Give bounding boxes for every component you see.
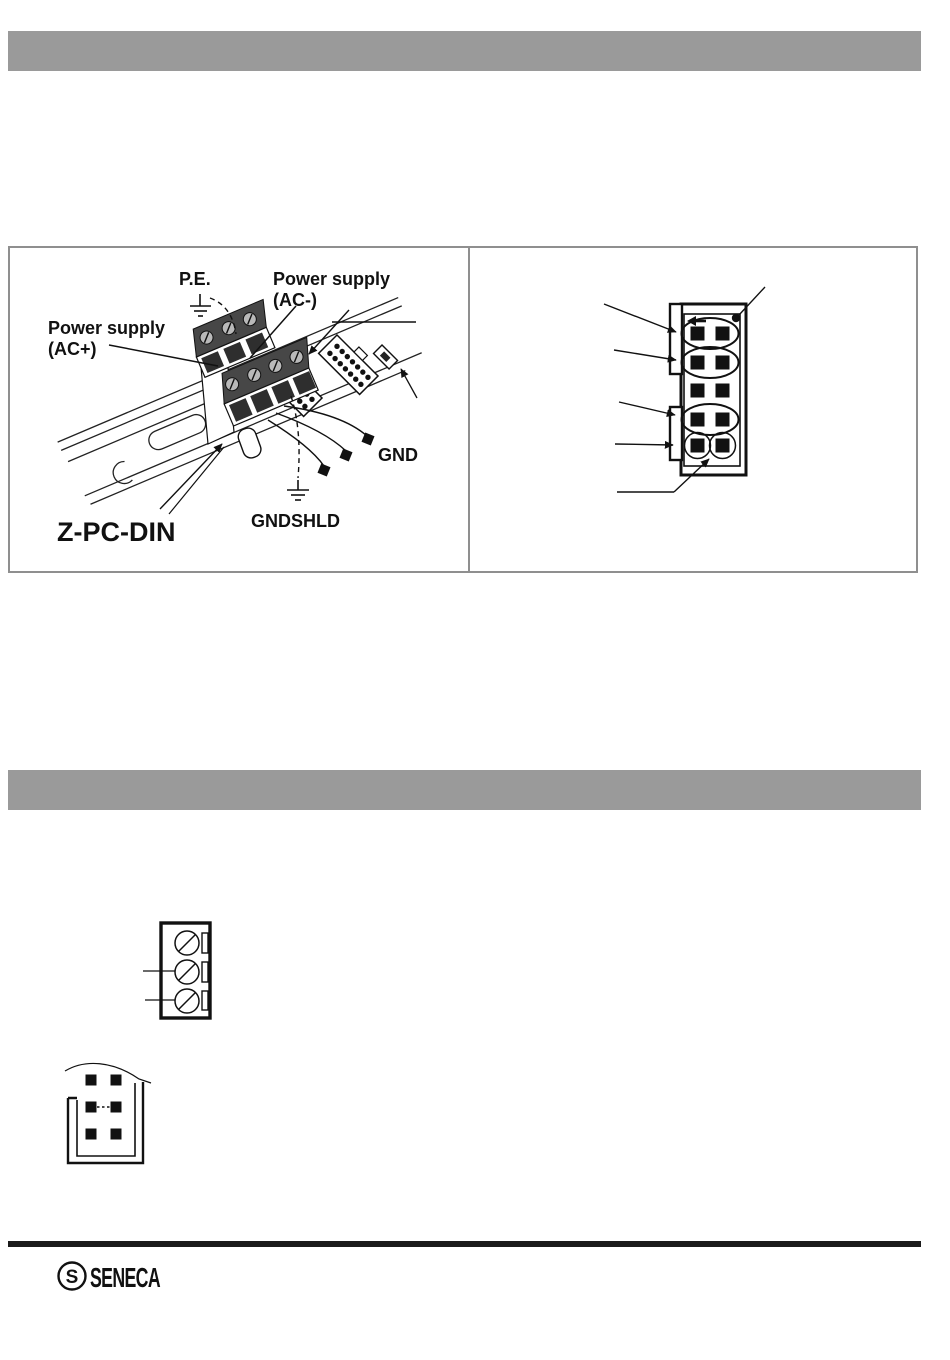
zpcdin-leader — [160, 444, 222, 509]
section-header-bar-top — [8, 31, 921, 71]
corner-dot-leader — [739, 287, 765, 315]
corner-dot — [732, 314, 740, 322]
screw-terminal-diagram — [140, 915, 260, 1030]
label-ac-minus-1: Power supply — [273, 269, 390, 289]
label-ac-minus-2: (AC-) — [273, 290, 317, 310]
rail-slot — [146, 412, 209, 453]
jumper-connector-diagram — [55, 1055, 170, 1195]
figure-panel: P.E. Power supply (AC-) Power supply (AC… — [8, 246, 918, 573]
rail-clip — [236, 426, 263, 460]
label-z-pc-din: Z-PC-DIN — [57, 517, 175, 547]
cable-arc — [65, 1063, 151, 1083]
connector-key-tab-top — [670, 304, 682, 374]
ground-wires — [268, 406, 367, 466]
label-pe: P.E. — [179, 269, 211, 289]
shell-outer-outline — [68, 1082, 143, 1163]
earth-ground-icon-pe — [190, 294, 211, 316]
document-page: P.E. Power supply (AC-) Power supply (AC… — [0, 0, 950, 1360]
pinout-diagram-cell — [470, 248, 916, 571]
connector-pinout-diagram — [470, 248, 916, 571]
jumper — [374, 345, 398, 369]
rail-hole-arc — [110, 461, 133, 487]
din-rail-wiring-diagram: P.E. Power supply (AC-) Power supply (AC… — [10, 248, 468, 571]
jumper-arrow — [401, 369, 417, 398]
wiring-diagram-cell: P.E. Power supply (AC-) Power supply (AC… — [10, 248, 470, 571]
label-gndshld: GNDSHLD — [251, 511, 340, 531]
wire-end-squares — [317, 432, 374, 476]
seneca-logo: S SENECA — [55, 1258, 185, 1298]
section-header-bar-mid — [8, 770, 921, 810]
footer-rule — [8, 1241, 921, 1247]
logo-wordmark: SENECA — [90, 1262, 160, 1293]
shell-inner-outline — [77, 1083, 135, 1156]
label-ac-plus-1: Power supply — [48, 318, 165, 338]
earth-ground-icon-shield — [287, 480, 309, 500]
label-gnd: GND — [378, 445, 418, 465]
label-ac-plus-2: (AC+) — [48, 339, 97, 359]
logo-mark-letter: S — [66, 1267, 79, 1288]
